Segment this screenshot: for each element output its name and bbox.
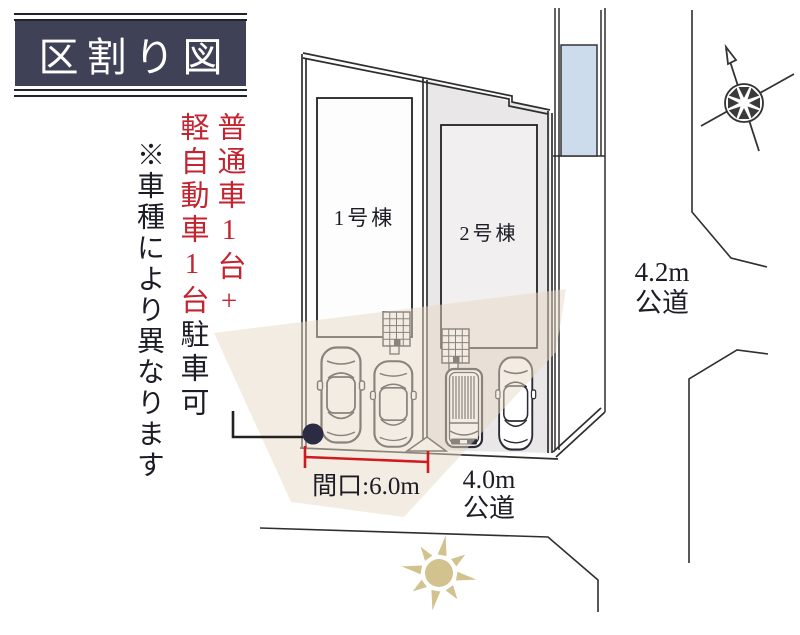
parking-note-line1: 普通車1台+: [214, 112, 243, 322]
road-south-type: 公道: [448, 494, 530, 523]
lot-layout-diagram: 区割り図 普通車1台+ 軽自動車1台駐車可 ※車種により異なります 1号棟 2号…: [0, 0, 800, 635]
road-east-type: 公道: [618, 288, 706, 319]
page-title: 区割り図: [15, 21, 246, 86]
road-east-label: 4.2m 公道: [618, 257, 706, 319]
road-south-width: 4.0m: [448, 465, 530, 494]
title-text: 区割り図: [31, 25, 231, 83]
frontage-dimension-label: 間口:6.0m: [296, 466, 436, 502]
building-2-label: 2号棟: [441, 217, 537, 246]
north-compass-icon: [701, 47, 794, 151]
road-east-width: 4.2m: [618, 257, 706, 288]
neighbor-building-blue: [561, 45, 597, 156]
road-south-label: 4.0m 公道: [448, 465, 530, 523]
sun-icon: [401, 535, 477, 611]
parking-note-disclaimer: ※車種により異なります: [134, 140, 162, 481]
parking-note-line2-black: 駐車可: [176, 319, 208, 421]
boundary-dot-marker: [303, 424, 324, 445]
title-rule-top: [14, 13, 247, 21]
title-rule-bottom: [14, 89, 247, 97]
building-1-label: 1号棟: [317, 202, 412, 232]
parking-note-line2: 軽自動車1台駐車可: [177, 112, 206, 421]
neighbor-parcel: [553, 8, 605, 450]
parking-note-line2-red: 軽自動車1台: [176, 112, 208, 319]
